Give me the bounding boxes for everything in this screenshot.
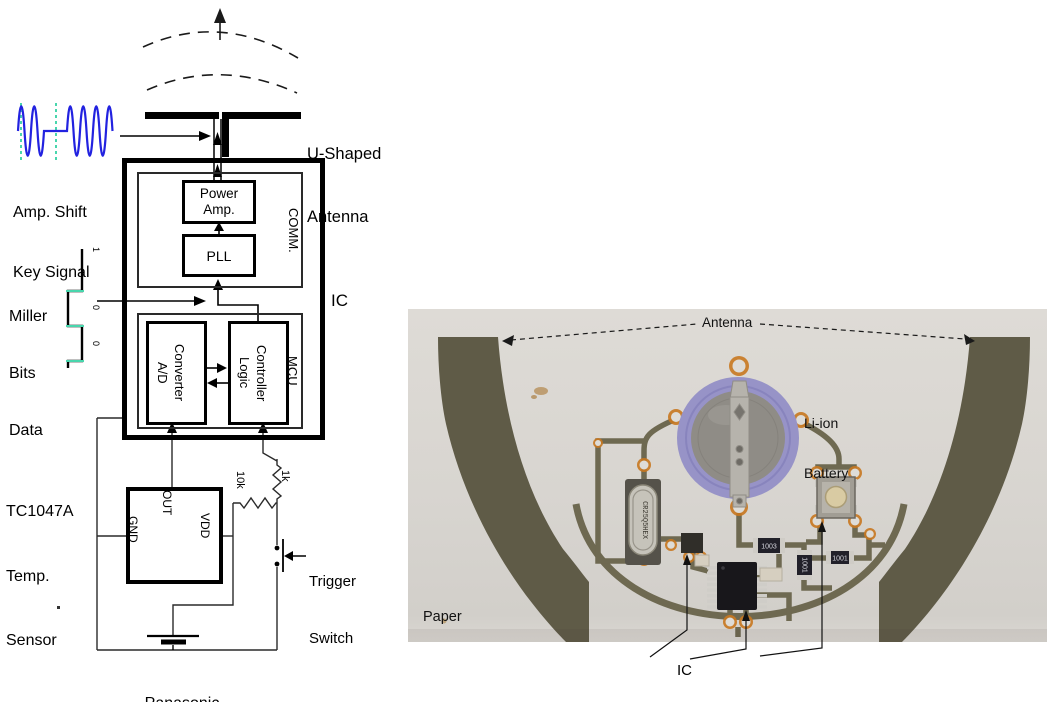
logic-label-line2: Controller	[254, 322, 269, 424]
resistor-10k-symbol	[233, 498, 277, 508]
logic-label-line1: Logic	[237, 322, 252, 424]
pll-box: PLL	[182, 234, 256, 277]
tc1047a-label-line2: Temp.	[6, 566, 74, 588]
battery-symbol	[147, 636, 199, 650]
u-antenna-label-line1: U-Shaped	[307, 144, 381, 165]
miller-bit-1: 1	[91, 247, 101, 252]
adc-label-line1: A/D	[155, 322, 170, 424]
comm-label: COMM.	[286, 173, 301, 287]
photo-trigger-label: Trigger Switch	[733, 657, 780, 702]
miller-bit-3: 0	[91, 341, 101, 346]
tc1047a-label: TC1047A Temp. Sensor	[6, 458, 74, 695]
adc-label-line2: Converter	[172, 322, 187, 424]
pin-gnd-label: GND	[126, 516, 140, 543]
radiation-arrowhead	[214, 8, 226, 23]
ask-waveform	[18, 103, 113, 163]
photo-temp-label: Temp. Sensor	[623, 660, 671, 702]
trigger-switch-label-line2: Switch	[309, 629, 356, 648]
miller-label-line2: Bits	[9, 364, 47, 383]
pin-vdd-label: VDD	[198, 513, 212, 538]
photo-label-leaders	[650, 521, 826, 659]
ask-wave-path	[18, 106, 113, 156]
u-antenna-symbol	[145, 112, 301, 157]
miller-label-line1: Miller	[9, 307, 47, 326]
tc1047a-label-line3: Sensor	[6, 630, 74, 652]
radiation-waves	[143, 8, 298, 93]
mcu-label: MCU	[285, 314, 300, 428]
miller-label: Miller Bits Data	[9, 269, 47, 478]
resistor-1k-label: 1k	[279, 470, 291, 482]
u-antenna-label-line2: Antenna	[307, 207, 381, 228]
miller-bit-2: 0	[91, 305, 101, 310]
tc1047a-label-line1: TC1047A	[6, 501, 74, 523]
figure-canvas: CR25Q5HEX	[0, 0, 1054, 702]
ask-label-line1: Amp. Shift	[13, 203, 90, 223]
pin-out-label: OUT	[160, 490, 174, 515]
trigger-switch-label: Trigger Switch	[309, 534, 356, 686]
battery-model-line1: Panasonic	[127, 693, 237, 702]
photo-ic-label: IC	[677, 662, 692, 679]
power-amp-label-line2: Amp.	[203, 202, 235, 218]
power-amp-label-line1: Power	[200, 186, 238, 202]
pll-label: PLL	[207, 248, 232, 264]
trigger-switch-symbol	[275, 539, 306, 572]
power-amp-box: Power Amp.	[182, 180, 256, 224]
ic-label: IC	[331, 291, 348, 311]
u-antenna-label: U-Shaped Antenna	[307, 102, 381, 270]
ask-input-arrow	[120, 131, 211, 141]
miller-label-line3: Data	[9, 421, 47, 440]
trigger-switch-label-line1: Trigger	[309, 572, 356, 591]
resistor-10k-label: 10k	[234, 471, 246, 489]
battery-model-label: Panasonic ML-2020	[127, 651, 237, 702]
